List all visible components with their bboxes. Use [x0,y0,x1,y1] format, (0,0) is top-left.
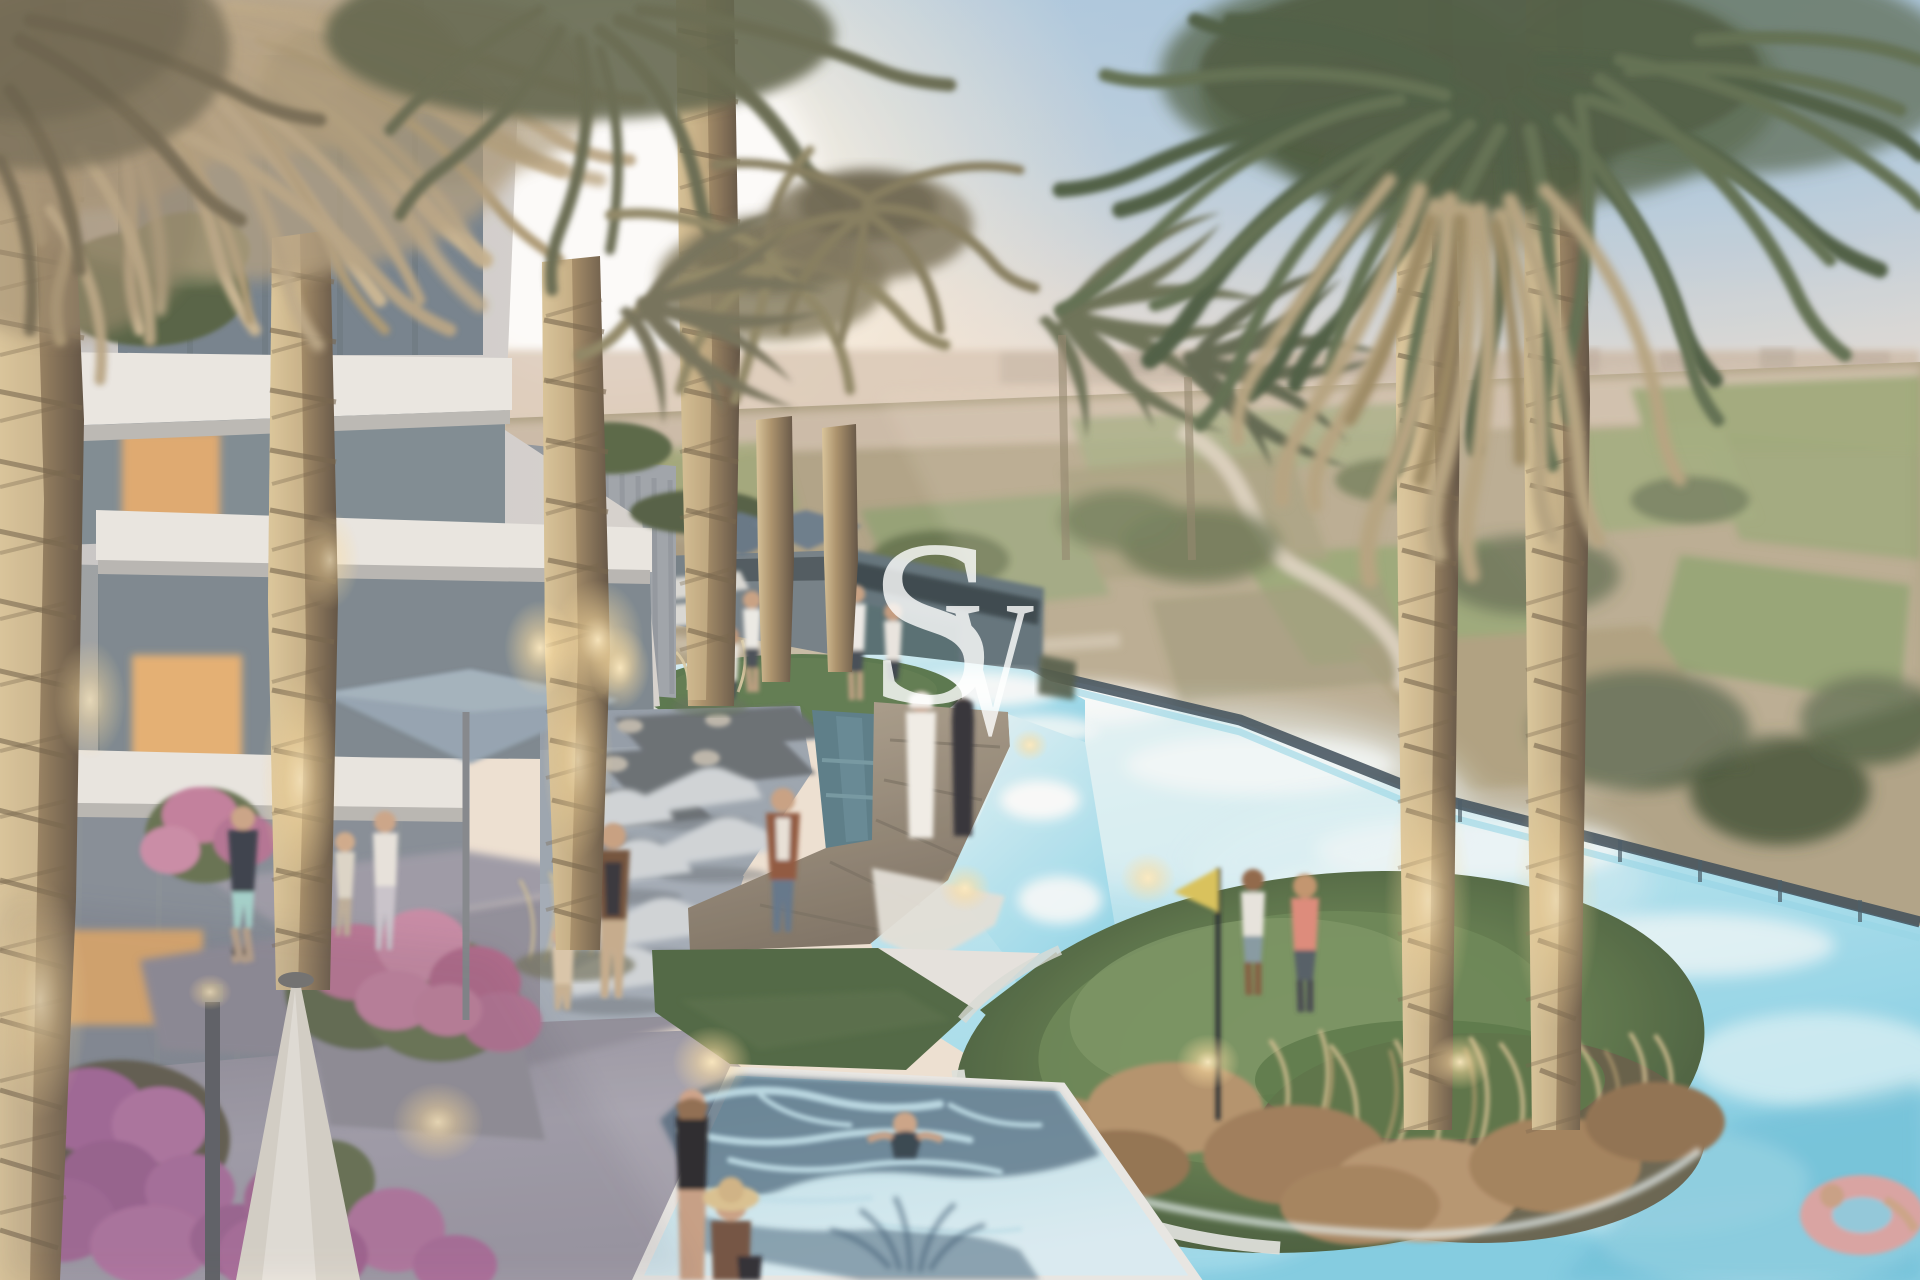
svg-text:V: V [945,561,1035,777]
